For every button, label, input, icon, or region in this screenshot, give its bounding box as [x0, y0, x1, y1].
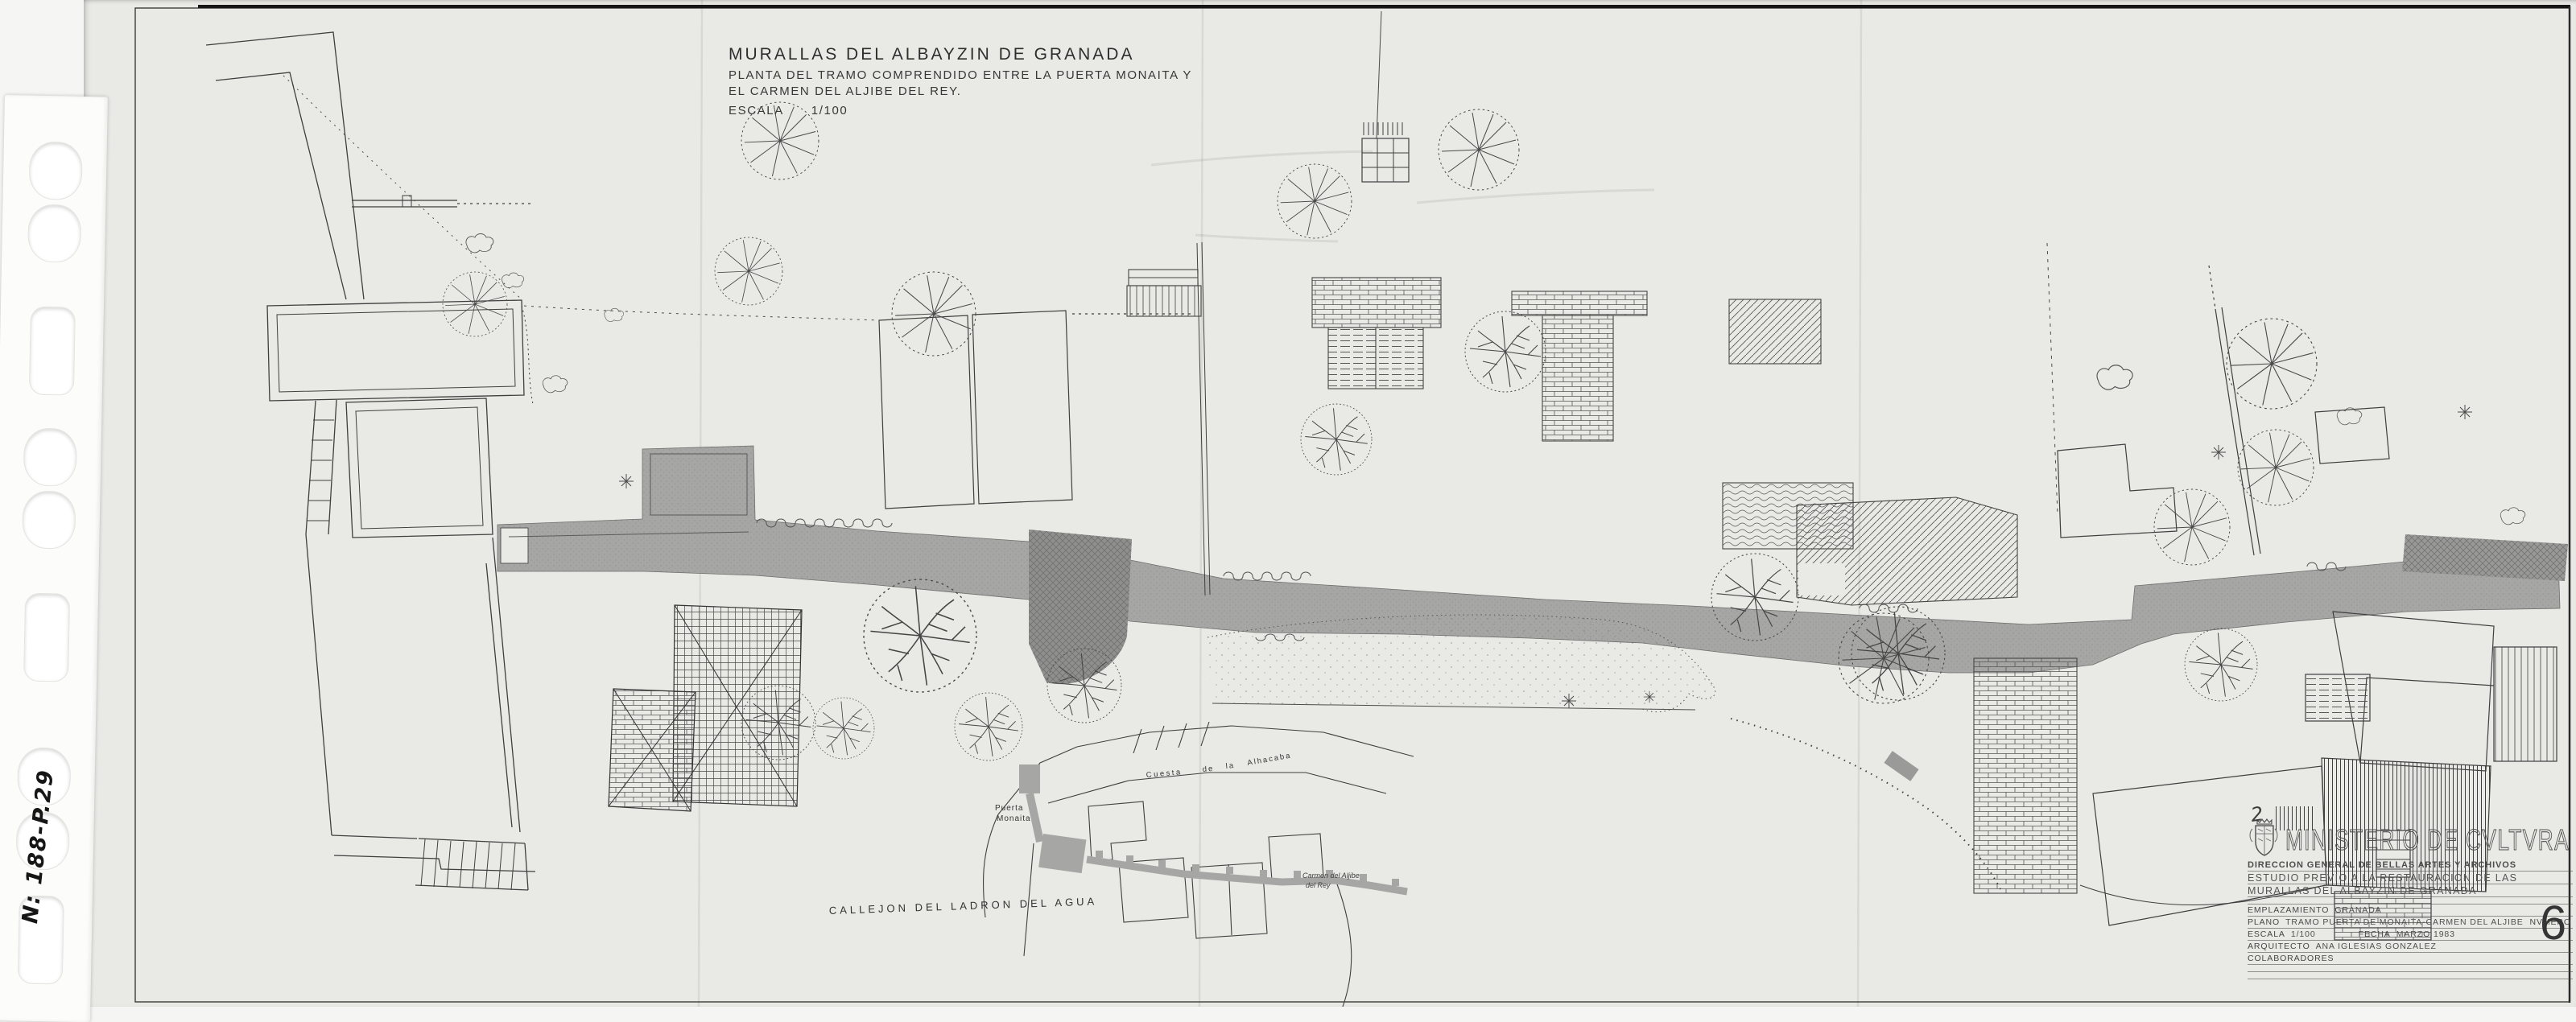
binder-strip: [0, 95, 108, 1022]
escala-label: ESCALA: [2248, 929, 2285, 939]
arquitecto-value: ANA IGLESIAS GONZALEZ: [2316, 942, 2437, 951]
sheet-number: 6: [2538, 894, 2567, 950]
plan-text-labels: CALLEJON DEL LADRON DEL AGUA Cuesta de l…: [829, 751, 1360, 917]
title-line-3: EL CARMEN DEL ALJIBE DEL REY.: [729, 84, 1192, 98]
puerta-monaita-label-line2: Monaita: [997, 814, 1031, 823]
emplazamiento-value: GRANADA: [2334, 905, 2381, 915]
direccion-line: DIRECCION GENERAL DE BELLAS ARTES Y ARCH…: [2248, 860, 2516, 870]
street-label-cuesta-word3: la: [1225, 761, 1235, 771]
fecha-label: FECHA: [2359, 929, 2391, 939]
drawing-title: MURALLAS DEL ALBAYZIN DE GRANADA PLANTA …: [729, 45, 1192, 117]
street-label-cuesta-word2: de: [1202, 764, 1214, 774]
ministry-title-block: 2 MINISTERIO DE CVLTVRA DIRECCION GENERA…: [2248, 816, 2573, 979]
plano-label: PLANO: [2248, 917, 2280, 927]
emplazamiento-label: EMPLAZAMIENTO: [2248, 905, 2329, 915]
street-label-callejon: CALLEJON DEL LADRON DEL AGUA: [829, 895, 1098, 917]
estudio-line-2: MURALLAS DEL ALBAYZIN DE GRANADA: [2248, 885, 2477, 896]
title-line-1: MURALLAS DEL ALBAYZIN DE GRANADA: [729, 45, 1192, 64]
ministry-name: MINISTERIO DE CVLTVRA: [2284, 819, 2573, 858]
plano-value: TRAMO PUERTA DE MONAITA-CARMEN DEL ALJIB…: [2285, 917, 2524, 927]
title-scale-line: ESCALA1/100: [729, 104, 1192, 117]
left-building-complex: [206, 32, 535, 890]
estudio-line-1: ESTUDIO PREVIO A LA RESTAURACION DE LAS: [2248, 872, 2517, 884]
punch-hole-icon: [27, 204, 81, 263]
scan-fold-lines: [699, 0, 1861, 1007]
arquitecto-label: ARQUITECTO: [2248, 942, 2310, 951]
scale-value: 1/100: [811, 104, 848, 117]
carmen-label-line1: Carmen del Aljibe: [1302, 872, 1360, 880]
terrain-boundaries: [283, 11, 2525, 525]
street-label-cuesta-word1: Cuesta: [1146, 768, 1183, 780]
puerta-monaita-label-line1: Puerta: [995, 804, 1023, 813]
punch-hole-icon: [29, 142, 83, 200]
village-inset-map: [983, 722, 1414, 1007]
sheet-frame: [135, 6, 2570, 1003]
inset-wall: [1019, 764, 1399, 886]
carmen-label-line2: del Rey: [1306, 881, 1331, 889]
punch-hole-icon: [23, 428, 77, 487]
scale-label: ESCALA: [729, 104, 784, 117]
pencil-smudges: [1151, 151, 1654, 241]
title-line-2: PLANTA DEL TRAMO COMPRENDIDO ENTRE LA PU…: [729, 68, 1192, 82]
hip-roof-building: [609, 605, 802, 811]
punch-hole-icon: [23, 593, 70, 682]
hatched-buildings: [1127, 270, 2316, 893]
punch-hole-icon: [22, 491, 76, 550]
svg-text:MINISTERIO DE CVLTVRA: MINISTERIO DE CVLTVRA: [2285, 824, 2570, 856]
stamp-rows: DIRECCION GENERAL DE BELLAS ARTES Y ARCH…: [2248, 859, 2573, 979]
escala-value: 1/100: [2291, 929, 2316, 939]
terrain-mound: [1207, 615, 1715, 712]
punch-hole-icon: [29, 307, 76, 396]
street-label-cuesta-word4: Alhacaba: [1247, 751, 1293, 767]
fecha-value: MARZO 1983: [2396, 929, 2455, 939]
colaboradores-label: COLABORADORES: [2248, 954, 2334, 963]
site-plan-drawing: CALLEJON DEL LADRON DEL AGUA Cuesta de l…: [0, 0, 2576, 1007]
